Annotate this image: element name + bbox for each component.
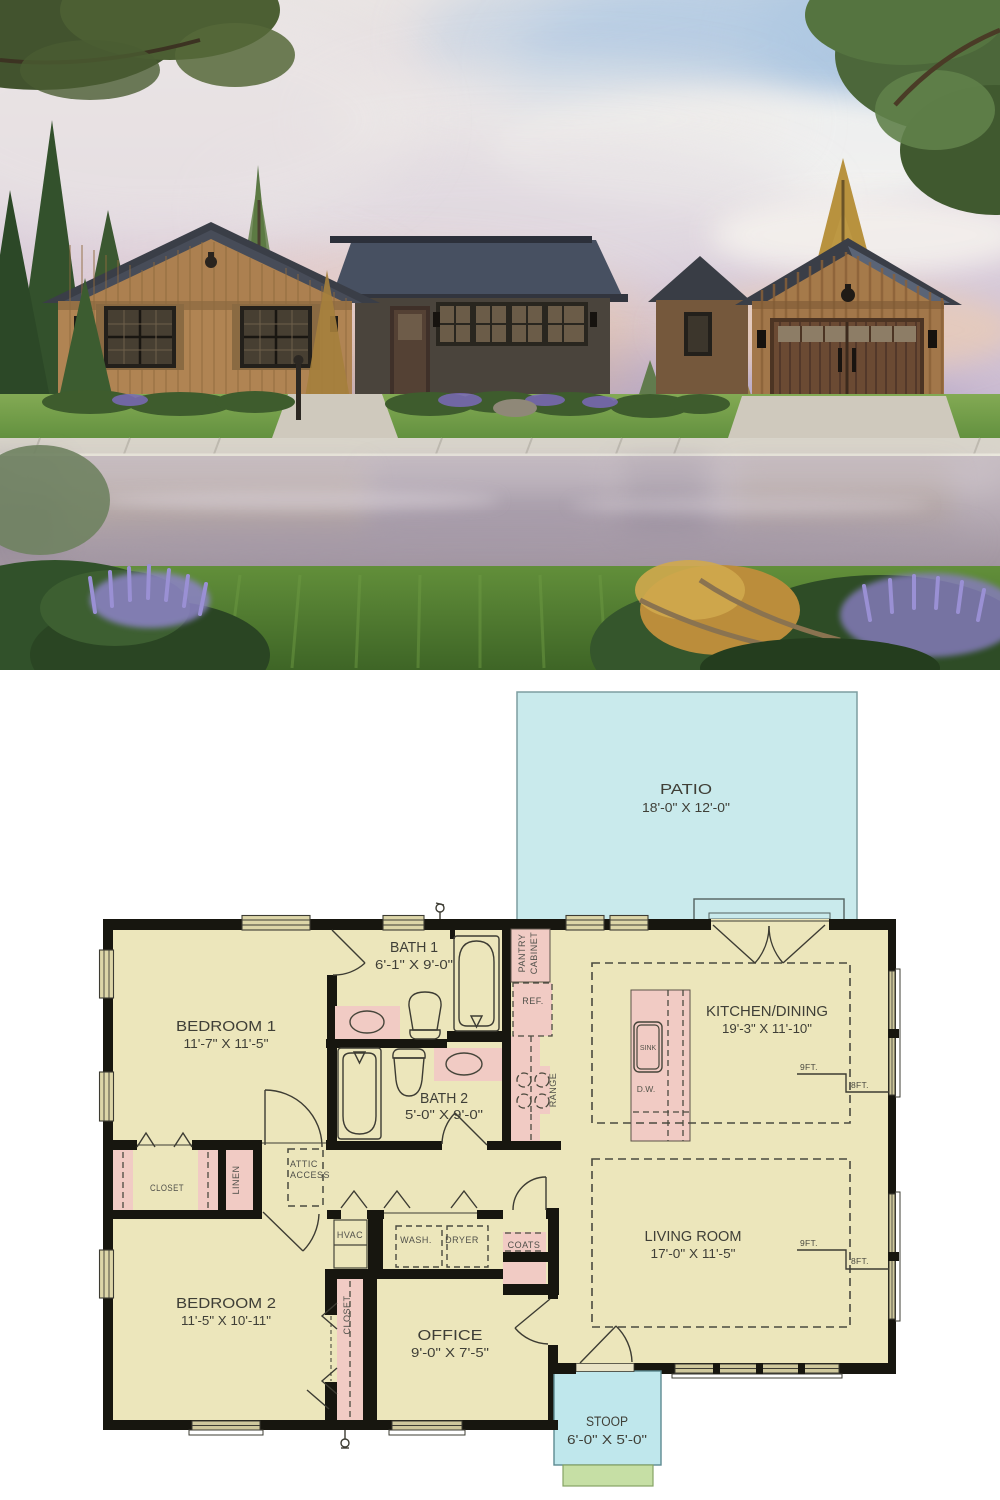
svg-text:6'-1" X 9'-0": 6'-1" X 9'-0": [375, 958, 453, 972]
svg-text:KITCHEN/DINING: KITCHEN/DINING: [706, 1004, 828, 1020]
svg-text:REF.: REF.: [522, 996, 544, 1006]
svg-text:HVAC: HVAC: [337, 1230, 363, 1240]
svg-text:DRYER: DRYER: [445, 1235, 479, 1245]
svg-text:D.W.: D.W.: [637, 1084, 655, 1094]
svg-text:6'-0" X 5'-0": 6'-0" X 5'-0": [567, 1433, 647, 1447]
svg-text:SINK: SINK: [640, 1045, 657, 1052]
svg-text:17'-0" X 11'-5": 17'-0" X 11'-5": [651, 1247, 736, 1261]
svg-text:11'-7" X 11'-5": 11'-7" X 11'-5": [184, 1037, 269, 1051]
svg-text:BATH 1: BATH 1: [390, 940, 438, 956]
svg-text:9FT.: 9FT.: [800, 1238, 818, 1248]
svg-text:CABINET: CABINET: [529, 932, 539, 975]
svg-text:5'-0" X 9'-0": 5'-0" X 9'-0": [405, 1108, 483, 1122]
svg-text:STOOP: STOOP: [586, 1414, 628, 1429]
svg-text:ACCESS: ACCESS: [290, 1170, 330, 1180]
svg-text:8FT.: 8FT.: [851, 1080, 869, 1090]
svg-text:9'-0" X 7'-5": 9'-0" X 7'-5": [411, 1346, 489, 1360]
svg-text:COATS: COATS: [508, 1240, 541, 1250]
svg-text:LIVING ROOM: LIVING ROOM: [645, 1229, 742, 1245]
svg-text:9FT.: 9FT.: [800, 1062, 818, 1072]
svg-text:8FT.: 8FT.: [851, 1256, 869, 1266]
svg-text:CLOSET: CLOSET: [150, 1183, 184, 1193]
svg-text:19'-3" X 11'-10": 19'-3" X 11'-10": [722, 1022, 812, 1036]
svg-text:PANTRY: PANTRY: [517, 934, 527, 973]
svg-text:11'-5" X 10'-11": 11'-5" X 10'-11": [181, 1314, 271, 1328]
svg-text:18'-0" X 12'-0": 18'-0" X 12'-0": [642, 801, 730, 815]
svg-text:LINEN: LINEN: [231, 1165, 241, 1194]
svg-text:RANGE: RANGE: [548, 1073, 558, 1108]
svg-text:BEDROOM 2: BEDROOM 2: [176, 1296, 276, 1312]
svg-text:CLOSET: CLOSET: [342, 1295, 352, 1334]
svg-text:WASH.: WASH.: [400, 1235, 432, 1245]
svg-text:ATTIC: ATTIC: [290, 1159, 318, 1169]
svg-text:BEDROOM 1: BEDROOM 1: [176, 1019, 276, 1035]
svg-text:BATH 2: BATH 2: [420, 1091, 468, 1107]
svg-text:PATIO: PATIO: [660, 782, 712, 798]
svg-text:OFFICE: OFFICE: [418, 1328, 483, 1344]
